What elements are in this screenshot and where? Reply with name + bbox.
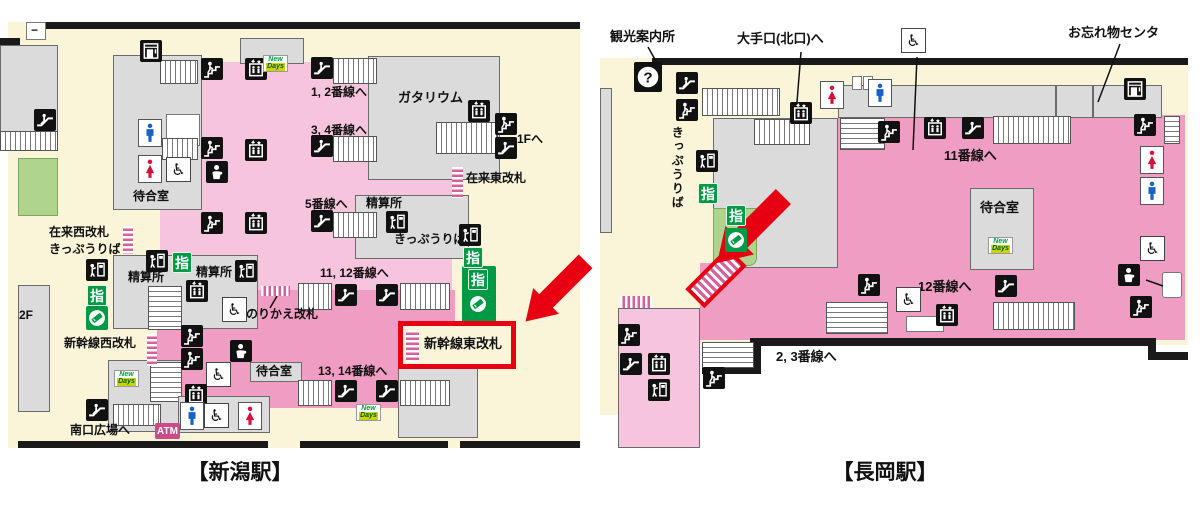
wheelchair-icon: ♿ (204, 403, 229, 428)
stairs-person-icon (495, 113, 517, 135)
map-label: 大手口(北口)へ (737, 32, 824, 46)
stairs-person-icon (201, 137, 223, 159)
restroom-men-icon (180, 402, 204, 430)
escalator-icon (495, 137, 517, 159)
wheelchair-icon: ♿ (166, 157, 191, 182)
escalator-icon (620, 353, 642, 375)
stairs-person-icon (1134, 114, 1156, 136)
green-circle-icon (467, 292, 489, 316)
escalator-icon (995, 275, 1017, 297)
escalator-icon (86, 399, 108, 421)
map-label: のりかえ改札 (246, 308, 318, 321)
map-label: 南口広場へ (70, 424, 130, 437)
restroom-men-icon (138, 119, 162, 147)
coinlocker-icon (140, 40, 162, 62)
fare-icon (459, 224, 481, 246)
fare-icon (696, 150, 718, 172)
fare-icon (146, 250, 168, 272)
elevator-icon (245, 212, 267, 234)
escalator-icon (962, 117, 984, 139)
escalator-icon (335, 284, 357, 306)
map-label: 1Fへ (517, 133, 543, 146)
map-label: 13, 14番線へ (318, 365, 387, 378)
fare-icon (86, 259, 108, 281)
fare-icon (648, 379, 670, 401)
map-label: 精算所 (128, 271, 164, 284)
escalator-icon (376, 380, 398, 402)
shitei-icon: 指 (698, 183, 718, 204)
escalator-icon (376, 284, 398, 306)
restroom-women-icon (238, 402, 262, 430)
wheelchair-icon: ♿ (896, 287, 921, 312)
nagaoka-caption: 【長岡駅】 (795, 456, 975, 486)
baby-icon (230, 340, 252, 362)
elevator-icon (186, 280, 208, 302)
stairs-person-icon (676, 99, 698, 121)
stairs-person-icon (878, 121, 900, 143)
map-label: お忘れ物センタ (1068, 26, 1159, 40)
newdays-icon: NewDays (988, 237, 1013, 254)
restroom-women-icon (820, 81, 844, 109)
stairs-person-icon (181, 348, 203, 370)
shitei-icon: 指 (463, 247, 483, 268)
map-label: きっぷうりば (49, 243, 121, 256)
shitei-icon: 指 (468, 269, 488, 290)
escalator-icon (676, 72, 698, 94)
baby-icon (206, 161, 228, 183)
shitei-icon: 指 (172, 252, 192, 273)
restroom-men-icon (868, 79, 892, 107)
elevator-icon (245, 139, 267, 161)
map-label: 待合室 (256, 365, 292, 378)
stairs-person-icon (858, 274, 880, 296)
restroom-women-icon (1140, 146, 1164, 174)
elevator-icon (790, 102, 812, 124)
newdays-icon: NewDays (114, 370, 139, 387)
restroom-men-icon (1140, 177, 1164, 205)
question-icon: ? (634, 62, 662, 92)
map-label: きっぷうりば (394, 233, 466, 246)
highlighted-gate-label: 新幹線東改札 (424, 337, 502, 351)
escalator-icon (34, 109, 56, 131)
shitei-icon: 指 (726, 205, 746, 226)
newdays-icon: NewDays (356, 404, 381, 421)
baby-icon (1118, 264, 1140, 286)
map-label: 在来東改札 (466, 172, 526, 185)
map-label: 新幹線西改札 (64, 337, 136, 350)
escalator-icon (311, 135, 333, 157)
elevator-icon (648, 353, 670, 375)
fare-icon (386, 211, 408, 233)
niigata-caption: 【新潟駅】 (150, 456, 330, 486)
atm-icon: ATM (155, 423, 180, 439)
station-maps-figure: 【新潟駅】 【長岡駅】 −1, 2番線へガタリウム3, 4番線へ1Fへ在来東改札… (0, 0, 1200, 530)
elevator-icon (924, 117, 946, 139)
restroom-women-icon (138, 155, 162, 183)
green-circle-icon (725, 228, 747, 252)
newdays-icon: NewDays (263, 55, 288, 72)
map-label: − (31, 24, 38, 37)
map-label: 精算所 (196, 266, 232, 279)
elevator-icon (468, 100, 490, 122)
stairs-person-icon (201, 212, 223, 234)
wheelchair-icon: ♿ (206, 362, 231, 387)
stairs-person-icon (201, 58, 223, 80)
shitei-icon: 指 (87, 285, 107, 306)
stairs-person-icon (1130, 296, 1152, 318)
stairs-person-icon (703, 367, 725, 389)
fare-icon (235, 260, 257, 282)
escalator-icon (311, 210, 333, 232)
map-label: 待合室 (980, 201, 1019, 215)
map-label: ガタリウム (398, 91, 463, 105)
map-label: 観光案内所 (610, 30, 675, 44)
map-label: 11番線へ (944, 149, 997, 163)
escalator-icon (335, 380, 357, 402)
map-label: 2, 3番線へ (776, 350, 837, 364)
map-label: 待合室 (133, 190, 169, 203)
map-label: 精算所 (366, 197, 402, 210)
map-label: 12番線へ (918, 280, 971, 294)
green-circle-icon (86, 306, 108, 330)
map-label: 在来西改札 (49, 226, 109, 239)
map-label: 2F (19, 309, 33, 322)
wheelchair-icon: ♿ (901, 28, 926, 53)
map-label: 1, 2番線へ (311, 86, 367, 99)
wheelchair-icon: ♿ (222, 297, 247, 322)
stairs-person-icon (181, 325, 203, 347)
coinlocker-icon (1124, 78, 1146, 100)
map-label: きっぷうりば (670, 126, 683, 210)
stairs-person-icon (618, 324, 640, 346)
map-label: 11, 12番線へ (320, 267, 389, 280)
wheelchair-icon: ♿ (1140, 236, 1165, 261)
svg-text:?: ? (643, 70, 652, 87)
elevator-icon (936, 304, 958, 326)
escalator-icon (311, 57, 333, 79)
